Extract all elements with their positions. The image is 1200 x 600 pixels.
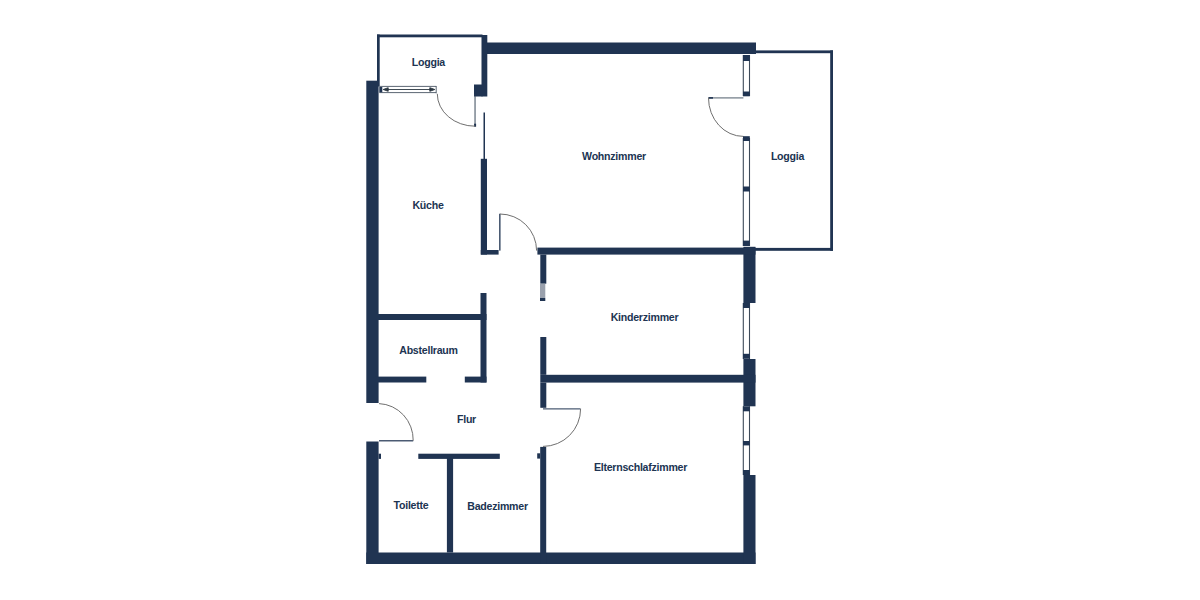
svg-text:Flur: Flur — [457, 413, 476, 425]
svg-text:Abstellraum: Abstellraum — [399, 344, 457, 356]
svg-text:Kinderzimmer: Kinderzimmer — [611, 311, 679, 323]
svg-text:Loggia: Loggia — [412, 56, 446, 68]
svg-text:Loggia: Loggia — [771, 150, 805, 162]
svg-text:Toilette: Toilette — [394, 499, 429, 511]
svg-text:Elternschlafzimmer: Elternschlafzimmer — [594, 461, 687, 473]
svg-text:Wohnzimmer: Wohnzimmer — [582, 150, 646, 162]
svg-text:Küche: Küche — [412, 199, 443, 211]
svg-text:Badezimmer: Badezimmer — [467, 500, 528, 512]
